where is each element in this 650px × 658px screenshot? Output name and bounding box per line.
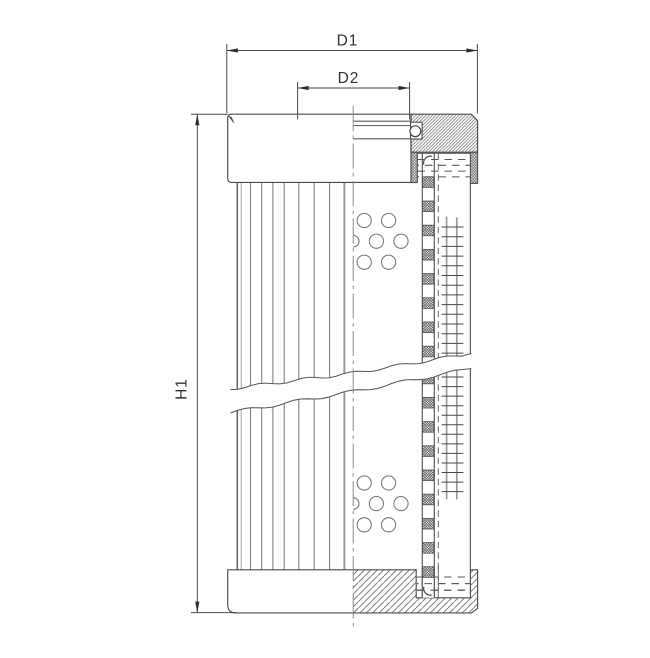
svg-text:D1: D1 [337, 33, 359, 50]
svg-text:D2: D2 [338, 70, 360, 87]
svg-text:H1: H1 [174, 378, 191, 400]
